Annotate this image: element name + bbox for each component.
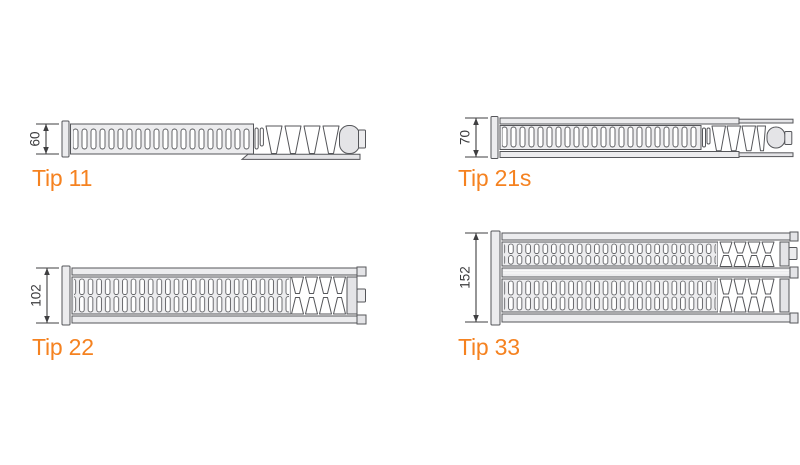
tip11-dimension: 60 <box>28 124 60 154</box>
tip33-bottom-panel-end <box>790 313 798 323</box>
tip11-depth-value: 60 <box>28 131 43 146</box>
tip11-fin-grille <box>73 126 252 152</box>
tip22-depth-value: 102 <box>29 284 44 307</box>
tip33-fin-grille-upper <box>504 243 716 265</box>
tip21s-depth-value: 70 <box>458 130 473 145</box>
figure-tip33: 152 <box>455 226 800 335</box>
tip11-bottom-strip <box>242 154 360 159</box>
tip22-fin-grille <box>74 278 289 313</box>
tip22-end-plate <box>347 277 357 314</box>
tip11-end-cap <box>340 126 360 154</box>
tip21s-dimension: 70 <box>458 118 489 157</box>
tip33-bottom-panel <box>502 314 790 322</box>
tip33-side-plate <box>491 231 500 325</box>
tip21s-radiator <box>491 117 793 159</box>
tip21s-fin-grille <box>502 127 699 149</box>
tip11-profile-drawing: 60 <box>26 110 366 166</box>
tip33-profile-drawing: 152 <box>455 226 800 330</box>
tip33-fin-grille-lower <box>504 280 716 311</box>
tip21s-top-panel-edge <box>739 119 793 123</box>
tip33-top-panel <box>502 233 790 240</box>
tip22-dimension: 102 <box>29 268 60 323</box>
tip33-middle-panel-end <box>790 267 798 278</box>
tip22-label: Tip 22 <box>32 335 94 359</box>
tip11-side-plate <box>62 121 69 157</box>
tip33-depth-value: 152 <box>458 266 473 289</box>
tip33-middle-panel <box>502 268 790 277</box>
tip33-dimension: 152 <box>458 233 489 322</box>
figure-tip11: 60 <box>26 110 366 171</box>
tip33-label: Tip 33 <box>458 335 520 359</box>
tip21s-profile-drawing: 70 <box>455 108 799 168</box>
tip33-end-plate-lower <box>780 279 789 312</box>
figure-tip21s: 70 <box>455 108 799 173</box>
tip22-side-plate <box>62 266 70 325</box>
tip33-end-plate-upper <box>780 242 789 266</box>
figure-tip22: 102 <box>26 262 371 335</box>
tip21s-top-panel <box>500 118 739 124</box>
tip21s-cutaway-fins <box>703 126 766 151</box>
tip33-radiator <box>491 231 798 325</box>
radiator-types-diagram: 60 Tip 11 <box>0 0 800 465</box>
tip21s-end-cap <box>767 127 785 148</box>
tip22-profile-drawing: 102 <box>26 262 371 330</box>
tip21s-label: Tip 21s <box>458 166 531 190</box>
tip22-bottom-panel <box>72 316 357 323</box>
tip11-cutaway-fins <box>255 126 339 154</box>
tip11-connection-nipple <box>359 130 366 148</box>
tip22-radiator <box>62 266 366 325</box>
tip22-bottom-panel-end <box>357 315 366 324</box>
tip33-top-panel-end <box>790 232 798 241</box>
tip21s-bottom-panel <box>500 152 739 158</box>
tip33-connection-nipple <box>789 248 797 260</box>
tip21s-bottom-panel-edge <box>739 153 793 157</box>
tip11-label: Tip 11 <box>32 166 92 190</box>
tip11-radiator <box>62 121 366 159</box>
tip22-connection-nipple <box>357 289 366 302</box>
tip22-top-panel <box>72 268 357 275</box>
tip21s-side-plate <box>491 117 498 159</box>
tip22-top-panel-end <box>357 267 366 276</box>
tip21s-connection-nipple <box>785 132 792 145</box>
